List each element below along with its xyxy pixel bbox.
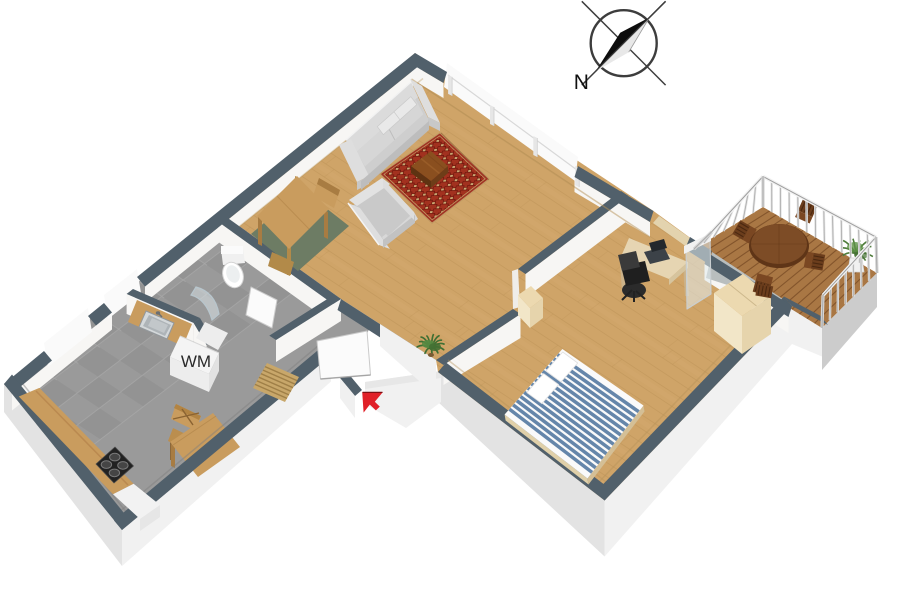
svg-text:N: N bbox=[574, 71, 589, 94]
svg-text:WM: WM bbox=[181, 352, 211, 371]
